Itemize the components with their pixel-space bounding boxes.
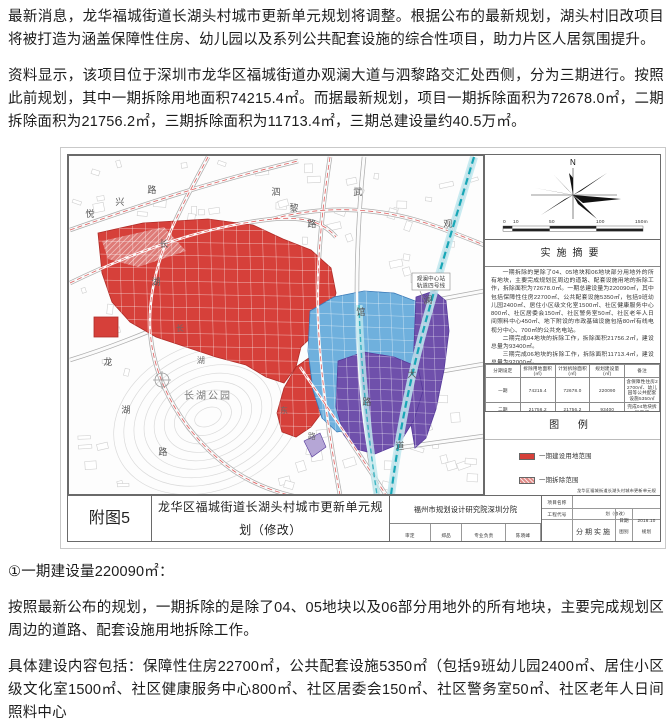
scale-tick: 0 (503, 219, 506, 225)
phase-table-cell: 220090 (590, 378, 625, 403)
summary-phase2: 二期完成04地块的拆除工作，拆除面积21756.2㎡，建设总量为93400㎡。 (491, 335, 654, 351)
project-name-value: 龙华区福城街道长湖头村城市更新单元规划（修改） (573, 496, 660, 508)
figure-number: 附图5 (68, 496, 152, 541)
planning-map: 观澜中心站 轨道四号线 长湖公园 悦兴路长湖龙湖路泗黎路武馆路观澜大道长湖东路 (68, 155, 484, 495)
map-road-char: 大 (407, 368, 416, 379)
legend-label: 一期拆除范围 (539, 469, 579, 492)
map-road-char: 湖 (151, 277, 160, 287)
phase-table-header: 计划拆除面积(㎡) (555, 365, 590, 378)
map-road-char: 观 (443, 219, 452, 229)
staff-cell: 专业负责 (462, 524, 506, 542)
paragraph-phase1-heading: ①一期建设量220090㎡： (8, 561, 664, 584)
map-road-char: 路 (147, 184, 156, 195)
drawing-title-block: 附图5 龙华区福城街道长湖头村城市更新单元规划（修改） 福州市规划设计研究院深圳… (68, 495, 660, 541)
drawing-title: 龙华区福城街道长湖头村城市更新单元规划（修改） (152, 496, 390, 541)
implementation-summary: 实施摘要 一期拆除的是除了04、05地块和06地块部分用地外的所有地块，主要完成… (485, 240, 660, 364)
legend-title: 图 例 (485, 412, 660, 440)
paragraph-project-data: 资料显示，该项目位于深圳市龙华区福城街道办观澜大道与泗黎路交汇处西侧，分为三期进… (8, 65, 664, 134)
scale-tick-labels: 01050100150m (503, 219, 648, 225)
phase-table-cell: 21756.2 (555, 403, 590, 412)
map-road-char: 兴 (115, 197, 124, 207)
map-road-char: 路 (362, 396, 371, 407)
article: 最新消息，龙华福城街道长湖头村城市更新单元规划将调整。根据公布的最新规划，湖头村… (0, 0, 672, 725)
phase-table-cell: 完成04地块拆除工作 (625, 403, 660, 412)
sheet-name-value: 分期实施规划图 (573, 520, 615, 542)
institute-name: 福州市规划设计研究院深圳分院 (390, 496, 541, 524)
phase-table-header: 拆除用地面积(㎡) (520, 365, 555, 378)
phase-table-cell: 72678.0 (555, 378, 590, 403)
phase-table-cell: 二期 (486, 403, 521, 412)
scale-bar (503, 226, 643, 231)
map-road-char: 澜 (423, 295, 432, 305)
phase-table-header: 分期设定 (486, 365, 521, 378)
station-name: 观澜中心站 (417, 275, 446, 283)
legend-swatch-hatch (519, 477, 535, 484)
map-road-char: 泗 (271, 187, 280, 197)
map-road-char: 龙 (103, 356, 112, 367)
map-side-panel: N (484, 155, 660, 495)
map-road-char: 东 (280, 405, 288, 415)
phase-table-cell: 含保障性住房22700㎡、幼儿园等公共配套设施5350㎡ (625, 378, 660, 403)
scale-tick: 100 (596, 219, 605, 225)
phase-table-header: 规划建设量(㎡) (590, 365, 625, 378)
compass-scale-svg: N (485, 155, 661, 239)
sheet-type-label: 图别 (616, 520, 633, 542)
sheet-name-label: 图纸名称 (542, 520, 573, 542)
map-road-char: 湖 (197, 356, 205, 365)
map-road-char: 黎 (289, 202, 298, 213)
phase-table-row: 二期21756.221756.293400完成04地块拆除工作 (486, 403, 660, 412)
sheet-type-value: 规划 (633, 520, 660, 542)
map-road-char: 道 (395, 440, 404, 451)
phase-table-cell: 74215.4 (520, 378, 555, 403)
design-institute-block: 福州市规划设计研究院深圳分院 审定郑品专业负责陈晓峰审核罗杏设 计李志平项目负责… (390, 496, 542, 541)
scale-tick: 10 (513, 219, 519, 225)
news-article-page: { "article": { "p1": "最新消息，龙华福城街道长湖头村城市更… (0, 0, 672, 689)
summary-body: 一期拆除的是除了04、05地块和06地块部分用地外的所有地块，主要完成规划区周边… (485, 267, 660, 363)
map-road-char: 路 (307, 218, 316, 229)
summary-phase3: 三期完成06地块的拆除工作，拆除面积11713.4㎡，建设总量为92000㎡。 (491, 351, 654, 363)
map-road-char: 长 (159, 238, 168, 249)
compass-scale-box: N (485, 155, 660, 240)
legend-item: 一期建设用地范围 (519, 445, 660, 468)
project-code-label: 工程代号 (542, 509, 573, 519)
phase-table-cell: 93400 (590, 403, 625, 412)
project-info-block: 项目名称 龙华区福城街道长湖头村城市更新单元规划（修改） 工程代号 日期 201… (542, 496, 660, 541)
legend-swatch-solid (519, 453, 535, 460)
planning-map-figure: 观澜中心站 轨道四号线 长湖公园 悦兴路长湖龙湖路泗黎路武馆路观澜大道长湖东路 … (60, 147, 666, 549)
phase-table-cell: 一期 (486, 378, 521, 403)
map-road-char: 武 (353, 186, 362, 197)
park-label: 长湖公园 (184, 390, 232, 402)
map-road-char: 馆 (356, 306, 365, 317)
summary-title: 实施摘要 (485, 240, 660, 267)
planning-map-frame: 观澜中心站 轨道四号线 长湖公园 悦兴路长湖龙湖路泗黎路武馆路观澜大道长湖东路 … (67, 154, 661, 542)
staff-cell: 审定 (390, 524, 431, 542)
staff-grid: 审定郑品专业负责陈晓峰审核罗杏设 计李志平项目负责李贤校 对钟丽娟 (390, 524, 541, 542)
phase-data-table-box: 分期设定拆除用地面积(㎡)计划拆除面积(㎡)规划建设量(㎡)备注一期74215.… (485, 364, 660, 412)
map-road-char: 路 (158, 446, 167, 457)
paragraph-phase1-scope: 按照最新公布的规划，一期拆除的是除了04、05地块以及06部分用地外的所有地块，… (8, 597, 664, 643)
scale-tick: 150m (635, 219, 648, 225)
map-road-char: 悦 (85, 208, 94, 219)
station-line: 轨道四号线 (417, 282, 446, 290)
map-road-char: 湖 (121, 405, 130, 415)
compass-rose-icon (531, 168, 621, 219)
north-label: N (570, 158, 576, 167)
map-road-char: 路 (308, 431, 316, 441)
legend-label: 一期建设用地范围 (539, 445, 592, 468)
phase-table-cell: 21756.2 (520, 403, 555, 412)
scale-tick: 50 (549, 219, 555, 225)
phase-data-table: 分期设定拆除用地面积(㎡)计划拆除面积(㎡)规划建设量(㎡)备注一期74215.… (485, 364, 660, 412)
project-code-value (573, 509, 615, 519)
phase-table-header: 备注 (625, 365, 660, 378)
staff-cell: 郑品 (431, 524, 463, 542)
map-road-char: 长 (176, 323, 184, 333)
paragraph-intro: 最新消息，龙华福城街道长湖头村城市更新单元规划将调整。根据公布的最新规划，湖头村… (8, 6, 664, 52)
phase-table-row: 一期74215.472678.0220090含保障性住房22700㎡、幼儿园等公… (486, 378, 660, 403)
paragraph-phase1-detail: 具体建设内容包括：保障性住房22700㎡，公共配套设施5350㎡（包括9班幼儿园… (8, 656, 664, 725)
summary-phase1: 一期拆除的是除了04、05地块和06地块部分用地外的所有地块，主要完成规划区周边… (491, 269, 654, 335)
staff-cell: 陈晓峰 (506, 524, 541, 542)
